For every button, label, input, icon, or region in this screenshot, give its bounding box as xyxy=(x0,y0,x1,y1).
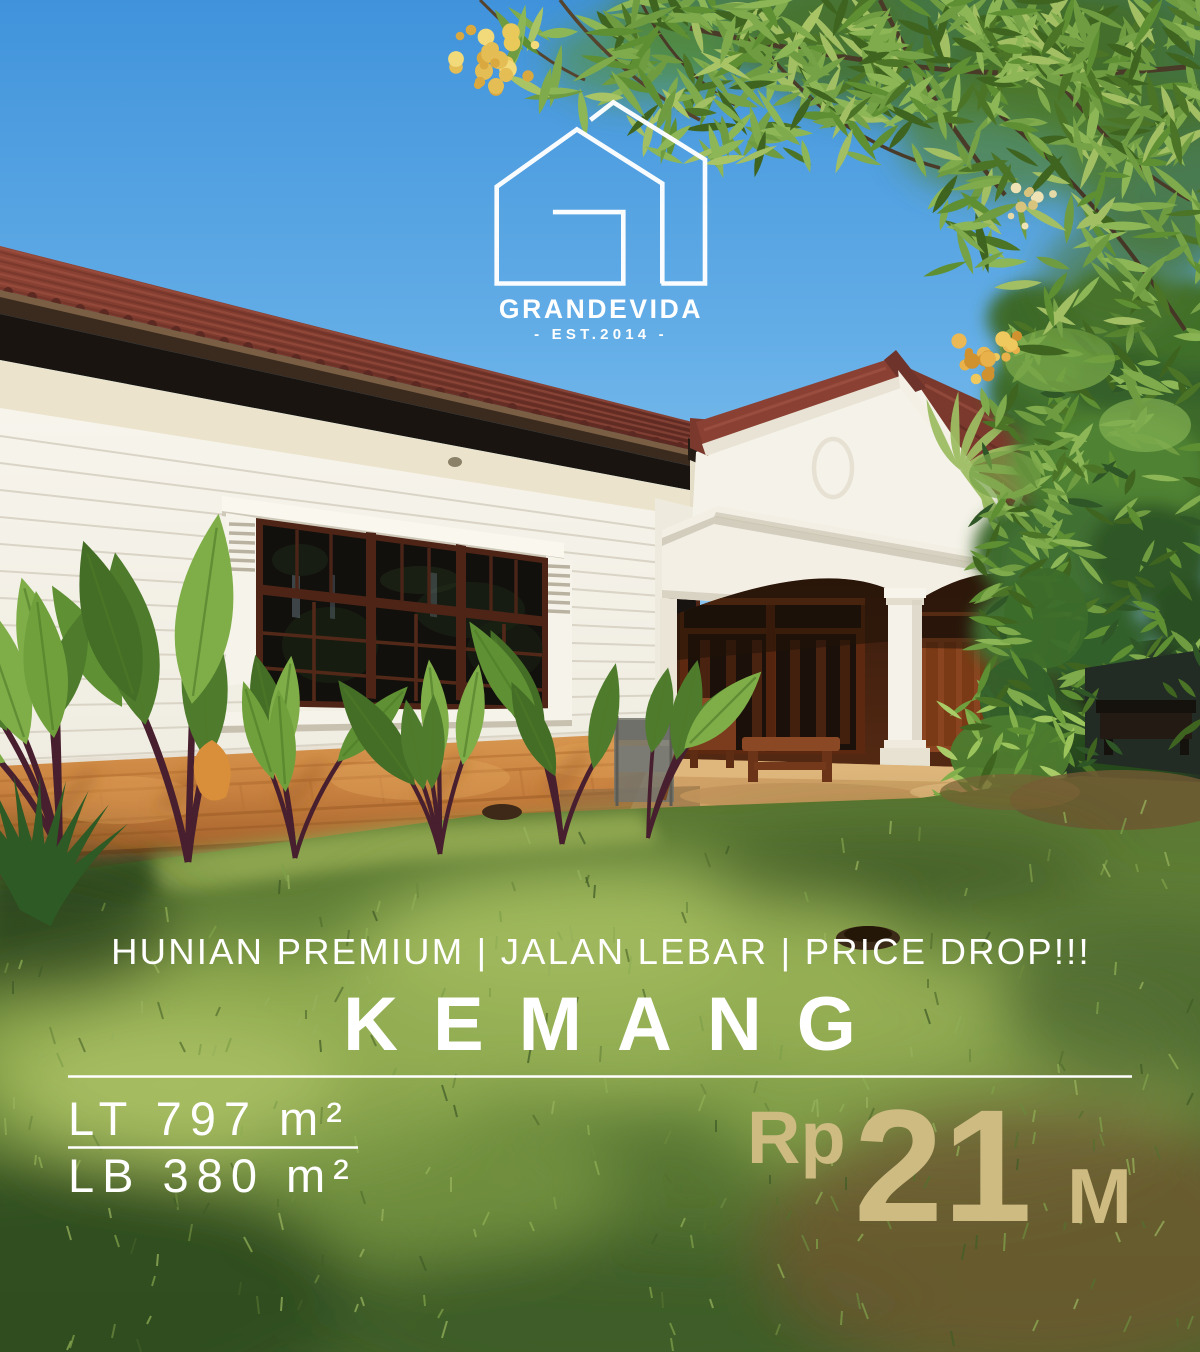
svg-text:KEMANG: KEMANG xyxy=(343,982,891,1067)
svg-text:HUNIAN PREMIUM | JALAN LEBAR |: HUNIAN PREMIUM | JALAN LEBAR | PRICE DRO… xyxy=(111,931,1091,972)
svg-text:Rp: Rp xyxy=(747,1096,846,1179)
svg-text:GRANDEVIDA: GRANDEVIDA xyxy=(499,294,703,324)
svg-text:M: M xyxy=(1067,1152,1132,1240)
svg-text:LT 797 m²: LT 797 m² xyxy=(68,1092,350,1145)
svg-text:21: 21 xyxy=(854,1076,1032,1255)
svg-text:LB 380 m²: LB 380 m² xyxy=(68,1149,357,1202)
svg-text:- EST.2014 -: - EST.2014 - xyxy=(534,326,668,343)
